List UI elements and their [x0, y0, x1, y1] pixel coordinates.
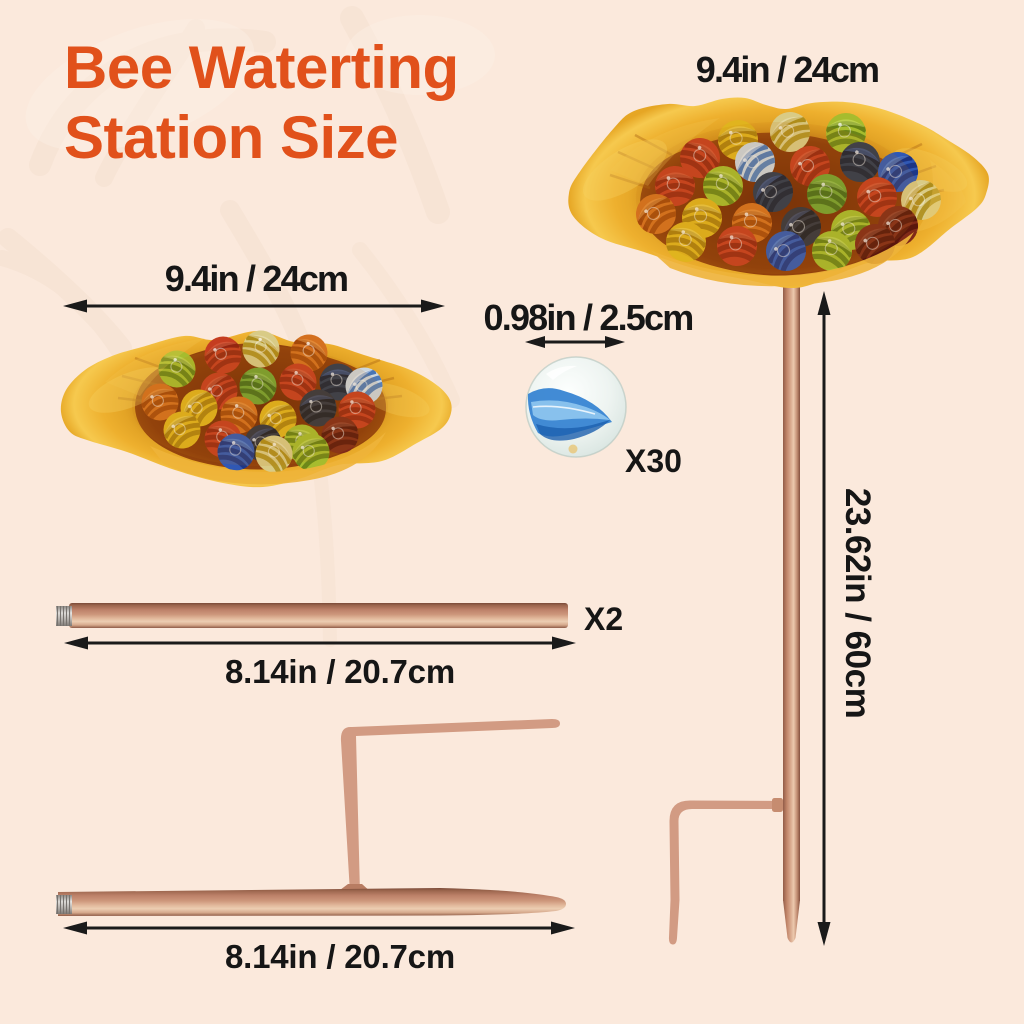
svg-text:Bee Waterting: Bee Waterting: [64, 34, 459, 101]
svg-text:23.62in / 60cm: 23.62in / 60cm: [838, 488, 877, 718]
svg-text:X2: X2: [584, 601, 623, 637]
svg-text:9.4in / 24cm: 9.4in / 24cm: [696, 49, 879, 90]
svg-text:9.4in / 24cm: 9.4in / 24cm: [165, 258, 348, 299]
svg-text:X30: X30: [625, 443, 682, 479]
svg-text:8.14in / 20.7cm: 8.14in / 20.7cm: [225, 938, 455, 975]
svg-text:0.98in / 2.5cm: 0.98in / 2.5cm: [484, 297, 693, 338]
svg-text:8.14in / 20.7cm: 8.14in / 20.7cm: [225, 653, 455, 690]
svg-text:Station Size: Station Size: [64, 104, 398, 171]
